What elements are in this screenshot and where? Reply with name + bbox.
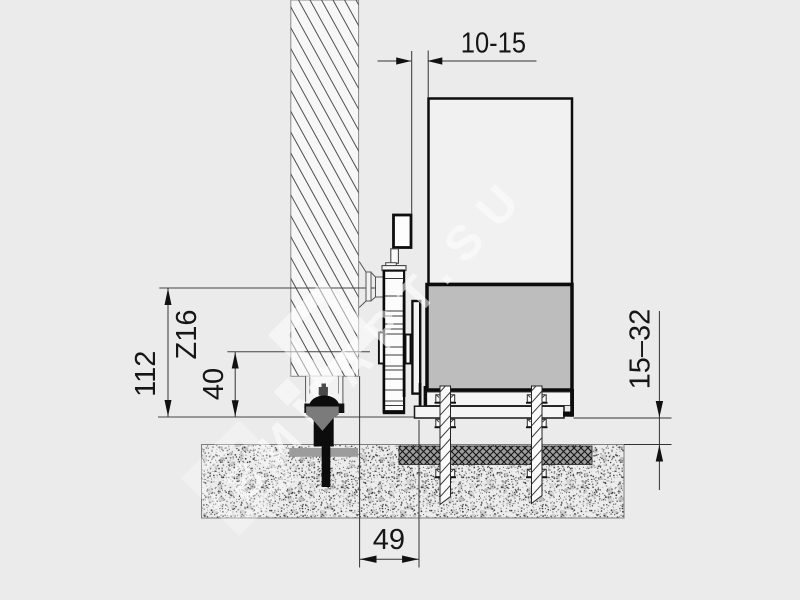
svg-text:112: 112 xyxy=(130,351,162,397)
svg-text:Z16: Z16 xyxy=(171,310,203,360)
svg-text:49: 49 xyxy=(373,524,405,556)
svg-text:10-15: 10-15 xyxy=(461,26,526,59)
svg-text:15–32: 15–32 xyxy=(624,309,656,390)
svg-text:40: 40 xyxy=(198,368,230,400)
